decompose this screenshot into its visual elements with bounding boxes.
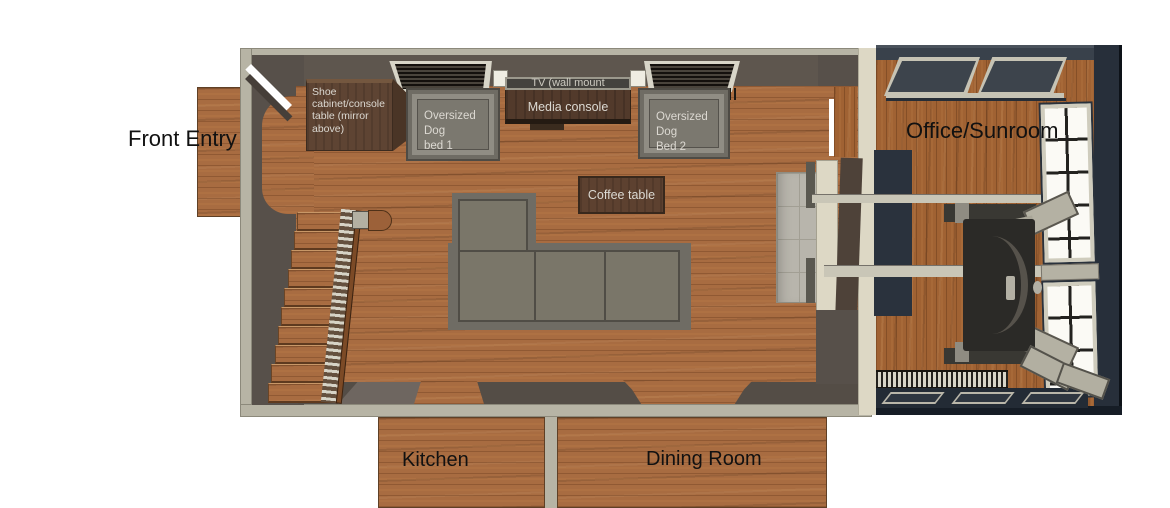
stair-landing-square <box>352 211 369 229</box>
media-console: Media console <box>505 90 631 124</box>
hearth-bracket <box>806 258 815 303</box>
bottom-window-pane <box>881 392 944 404</box>
desk-chair-tab <box>1006 276 1015 300</box>
front-entry-label: Front Entry <box>128 127 237 150</box>
wall-divider-bottom <box>816 310 858 384</box>
pass-through-wood <box>834 87 857 157</box>
desk-chair-nub <box>1033 281 1042 294</box>
window-transom <box>1041 263 1099 281</box>
shoe-cabinet-label: Shoe cabinet/console table (mirror above… <box>312 86 392 135</box>
kitchen-doorway <box>414 381 484 404</box>
speaker-box <box>630 70 646 87</box>
dog-bed-2: Oversized Dog Bed 2 <box>638 88 730 159</box>
front-entry-floor <box>197 87 242 217</box>
floor-plan: TV (wall mount Media console Shoe cabine… <box>0 0 1170 508</box>
kitchen-label: Kitchen <box>402 450 469 471</box>
stair-newel-post <box>368 210 392 231</box>
office-top-window-pane <box>981 61 1063 92</box>
office-partition-wall <box>874 150 912 316</box>
office-sunroom-label: Office/Sunroom <box>906 119 1058 142</box>
tv-wall-mount: TV (wall mount <box>505 77 631 90</box>
couch-cushion-seam <box>534 252 536 320</box>
tv-label: TV (wall mount <box>531 76 604 90</box>
dog-bed-2-label: Oversized Dog Bed 2 <box>656 110 728 155</box>
office-top-window <box>977 57 1067 96</box>
couch-seat-body <box>458 250 680 322</box>
dog-bed-1-label: Oversized Dog bed 1 <box>424 109 498 154</box>
radiator <box>876 370 1008 388</box>
dining-archway <box>623 380 753 404</box>
office-bottom-windows <box>876 388 1088 408</box>
bottom-window-pane <box>1021 392 1084 404</box>
coffee-table: Coffee table <box>578 176 665 214</box>
kitchen-dining-divider <box>545 417 557 508</box>
bottom-window-pane <box>951 392 1014 404</box>
window-blinds <box>390 64 488 89</box>
shoe-cabinet: Shoe cabinet/console table (mirror above… <box>306 79 393 151</box>
dog-bed-1: Oversized Dog bed 1 <box>406 88 500 161</box>
door-jamb-cream <box>816 160 838 313</box>
couch-cushion-seam <box>604 252 606 320</box>
media-console-label: Media console <box>506 99 630 115</box>
outer-wall-left <box>240 48 252 417</box>
outer-wall-bottom <box>240 404 872 417</box>
office-top-window <box>884 57 980 96</box>
coffee-table-label: Coffee table <box>588 187 655 203</box>
office-top-window-pane <box>888 61 976 92</box>
media-console-foot <box>530 124 564 130</box>
dining-room-label: Dining Room <box>646 449 762 470</box>
window-blinds <box>648 64 739 89</box>
